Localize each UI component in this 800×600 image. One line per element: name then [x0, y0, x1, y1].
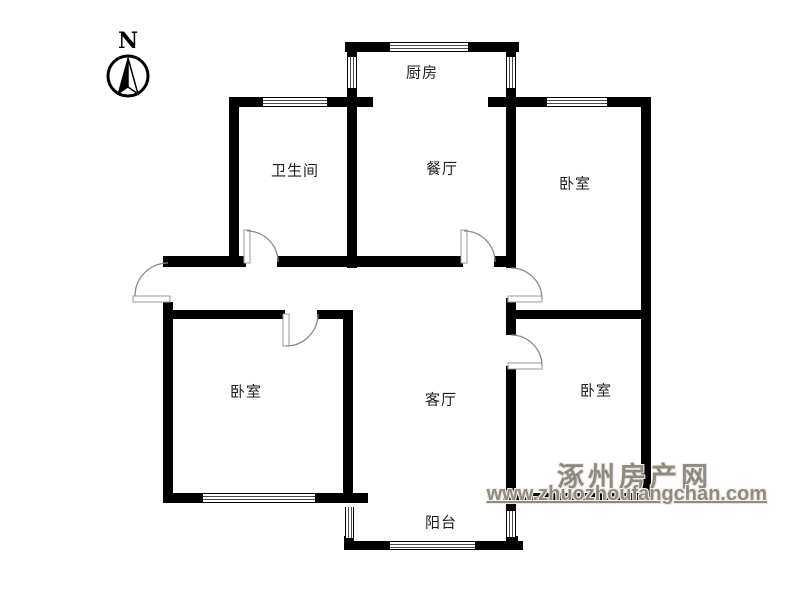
watermark-url: www.zhuozhoufangchan.com: [487, 483, 767, 506]
floor-plan: N 厨房 卫生间 餐厅 卧室 卧室 客厅 卧室 阳台 涿州房产网 www.zhu…: [0, 0, 800, 600]
room-label-balcony: 阳台: [425, 512, 457, 533]
room-label-bedroom-sw: 卧室: [230, 381, 262, 402]
room-label-living: 客厅: [425, 389, 457, 410]
bathroom-door-arc: [247, 231, 278, 262]
room-label-dining: 餐厅: [426, 158, 458, 179]
dining-door-arc: [464, 231, 495, 262]
compass-north-label: N: [118, 28, 138, 54]
bedroom-ne-door-leaf: [508, 296, 542, 302]
bedroom-se-door-arc: [511, 335, 542, 366]
room-label-kitchen: 厨房: [406, 62, 438, 83]
entry-door-leaf: [133, 296, 170, 302]
entry-door-arc: [135, 263, 168, 296]
bathroom-door-leaf: [244, 230, 250, 263]
bedroom-sw-door-arc: [286, 314, 318, 346]
dining-door-leaf: [461, 230, 467, 263]
bedroom-ne-door-arc: [511, 268, 542, 299]
north-compass: N: [96, 26, 160, 104]
compass-needle-right: [128, 58, 138, 94]
compass-needle-left: [118, 58, 128, 94]
bedroom-sw-door-leaf: [283, 314, 289, 346]
room-label-bedroom-ne: 卧室: [559, 173, 591, 194]
room-label-bedroom-se: 卧室: [580, 380, 612, 401]
bedroom-se-door-leaf: [508, 363, 542, 369]
room-label-bathroom: 卫生间: [271, 160, 319, 181]
